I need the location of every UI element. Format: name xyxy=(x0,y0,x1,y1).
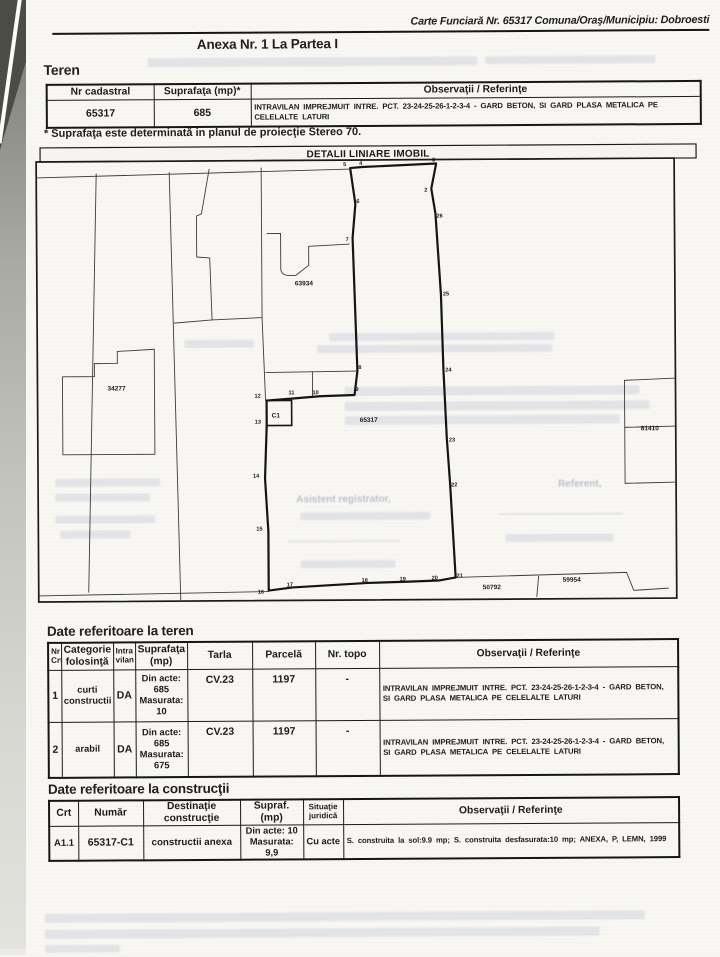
constructii-table: Crt Număr Destinaţie construcţie Supraf.… xyxy=(48,796,680,861)
col-header-intravilan: Intra vilan xyxy=(113,642,135,669)
map-point-label: 25 xyxy=(443,291,449,297)
col-header-parcela: Parcelă xyxy=(252,641,315,668)
map-point-label: 18 xyxy=(362,578,368,584)
cell-tarla: CV.23 xyxy=(187,669,252,721)
col-header-suprafata: Suprafaţa (mp) xyxy=(135,642,187,669)
map-point-label: 5 xyxy=(343,162,346,168)
map-title: DETALII LINIARE IMOBIL xyxy=(306,149,429,161)
map-point-label: 17 xyxy=(287,582,293,588)
map-point-label: 14 xyxy=(253,474,260,480)
bleed-text: Asistent registrator, xyxy=(296,494,391,506)
map-point-label: 12 xyxy=(255,394,261,400)
map-point-label: 6 xyxy=(356,199,359,205)
map-point-label: 2 xyxy=(424,188,427,194)
map-point-label: 13 xyxy=(255,420,261,426)
cell-tarla: CV.23 xyxy=(188,721,253,777)
street-line-top xyxy=(36,169,350,178)
col-header-categorie: Categorie folosinţă xyxy=(61,643,113,670)
neighbour-parcel-outline xyxy=(173,168,265,402)
col-header-nr-topo: Nr. topo xyxy=(315,641,379,668)
col-header-situatie: Situaţie juridică xyxy=(303,799,343,824)
map-point-label: 20 xyxy=(432,576,438,582)
cell-numar: 65317-C1 xyxy=(78,825,143,860)
neighbour-line xyxy=(265,371,356,397)
col-header-observatii: Observaţii / Referinţe xyxy=(379,639,678,668)
map-point-label: 10 xyxy=(313,390,319,396)
cell-observatii: INTRAVILAN IMPREJMUIT INTRE. PCT. 23-24-… xyxy=(379,666,678,720)
map-point-label: 11 xyxy=(289,390,295,396)
map-point-label: 24 xyxy=(445,367,452,373)
cell-situatie: Cu acte xyxy=(303,824,343,859)
map-parcel-number: 81410 xyxy=(641,425,660,432)
col-header-destinatie: Destinaţie construcţie xyxy=(143,800,240,826)
col-header-numar: Număr xyxy=(78,800,143,825)
col-header-crt: Crt xyxy=(49,801,78,826)
cell-suprafata: Din acte: 685 Masurata: 10 xyxy=(135,669,187,721)
cell-categorie: arabil xyxy=(62,722,114,778)
map-point-label: 26 xyxy=(436,213,442,219)
cell-categorie: curti constructii xyxy=(61,670,113,722)
cell-observatii: INTRAVILAN IMPREJMUIT INTRE. PCT. 23-24-… xyxy=(380,718,679,776)
map-parcel-number: 50792 xyxy=(483,584,502,591)
parcel-65317-boundary xyxy=(263,163,456,590)
section-heading-constructii: Date referitoare la construcţii xyxy=(48,781,229,797)
cell-suprafata: Din acte: 685 Masurata: 675 xyxy=(136,721,188,777)
bleed-text: Referent, xyxy=(558,479,601,490)
neighbour-line xyxy=(86,174,99,593)
cell-supraf: Din acte: 10 Masurata: 9,9 xyxy=(240,824,303,859)
map-point-label: 21 xyxy=(457,573,463,579)
cell-nr-topo: - xyxy=(316,720,380,776)
map-point-label: 3 xyxy=(432,158,435,164)
cell-nr-topo: - xyxy=(315,668,379,720)
map-point-label: 8 xyxy=(358,365,361,371)
col-header-nr-crt: Nr Crt xyxy=(48,643,61,670)
map-parcel-number: 63934 xyxy=(295,280,314,287)
map-point-label: 7 xyxy=(346,237,349,243)
map-point-label: 19 xyxy=(400,577,406,583)
map-point-label: 15 xyxy=(256,527,262,533)
map-parcel-number: C1 xyxy=(272,412,281,419)
map-parcel-number: 65317 xyxy=(360,417,379,424)
map-parcel-number: 34277 xyxy=(107,385,126,392)
cell-intravilan: DA xyxy=(113,669,135,721)
teren-details-table: Nr Crt Categorie folosinţă Intra vilan S… xyxy=(47,638,680,779)
col-header-supraf: Supraf. (mp) xyxy=(240,799,303,824)
parcel-63934-outline xyxy=(267,233,350,276)
map-parcel-number: 59954 xyxy=(563,577,582,584)
cell-crt: A1.1 xyxy=(49,826,78,861)
cell-nr: 2 xyxy=(49,722,62,778)
map-point-label: 16 xyxy=(258,590,264,596)
document-page: Carte Funciară Nr. 65317 Comuna/Oraş/Mun… xyxy=(0,0,720,957)
section-heading-teren-details: Date referitoare la teren xyxy=(47,623,194,639)
col-header-observatii: Observaţii / Referinţe xyxy=(343,797,679,824)
map-point-label: 22 xyxy=(451,482,457,488)
neighbour-line xyxy=(169,172,181,601)
col-header-tarla: Tarla xyxy=(187,642,252,669)
cell-nr: 1 xyxy=(48,670,61,722)
parcel-34277-outline xyxy=(62,349,155,455)
cell-observatii: S. construita la sol:9.9 mp; S. construi… xyxy=(343,822,679,859)
map-point-label: 23 xyxy=(449,437,455,443)
map-point-label: 9 xyxy=(355,387,358,393)
cell-parcela: 1197 xyxy=(253,720,316,776)
cell-parcela: 1197 xyxy=(252,668,315,720)
cell-intravilan: DA xyxy=(114,721,136,777)
cell-destinatie: constructii anexa xyxy=(143,825,240,860)
